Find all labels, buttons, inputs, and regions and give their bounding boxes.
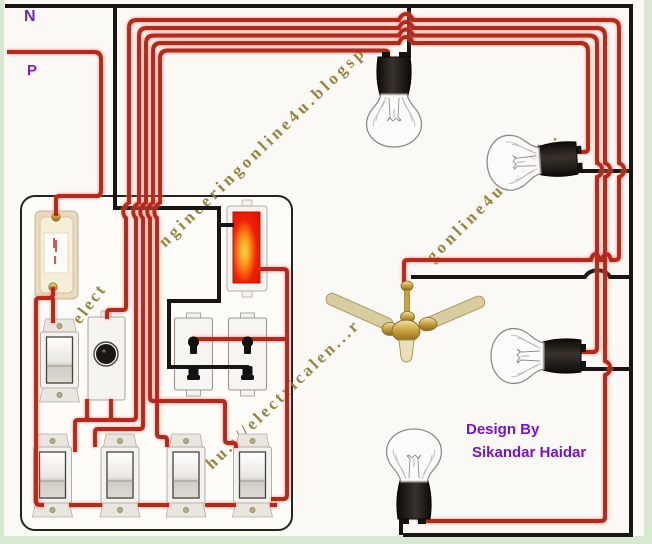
svg-text:P: P [27, 62, 37, 79]
svg-text:Sikandar Haidar: Sikandar Haidar [472, 444, 586, 461]
svg-text:N: N [24, 8, 36, 25]
svg-text:Design By: Design By [466, 421, 540, 438]
